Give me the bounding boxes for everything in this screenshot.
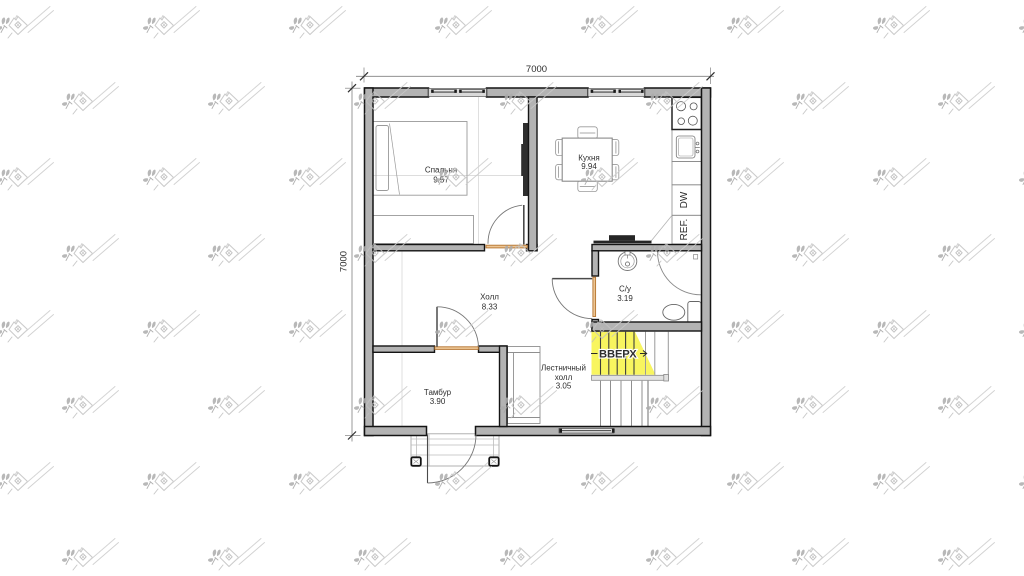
svg-text:9.94: 9.94	[581, 162, 597, 171]
svg-text:ВВЕРХ: ВВЕРХ	[599, 348, 637, 360]
svg-text:Холл: Холл	[480, 293, 499, 302]
svg-text:8.33: 8.33	[482, 303, 498, 312]
svg-text:Тамбур: Тамбур	[424, 388, 452, 397]
svg-text:7000: 7000	[339, 251, 350, 272]
svg-text:3.19: 3.19	[617, 294, 633, 303]
svg-text:С/у: С/у	[619, 285, 631, 294]
svg-text:REF.: REF.	[679, 219, 690, 241]
svg-text:3.90: 3.90	[430, 397, 446, 406]
svg-text:3.05: 3.05	[556, 382, 572, 391]
svg-text:Лестничный: Лестничный	[541, 364, 586, 373]
svg-text:7000: 7000	[526, 64, 547, 75]
svg-text:DW: DW	[679, 191, 690, 208]
